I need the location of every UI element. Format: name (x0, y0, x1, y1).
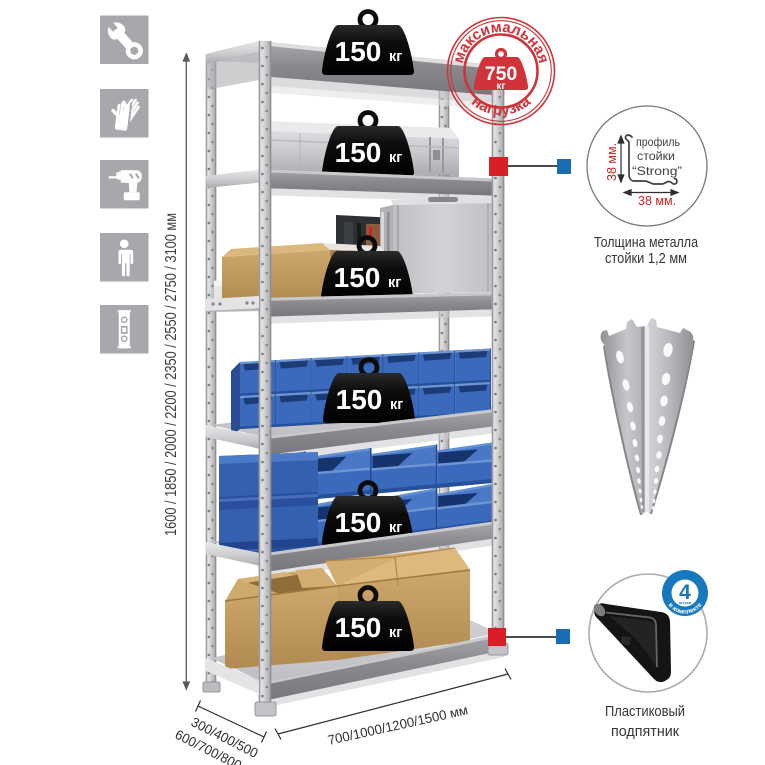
svg-text:кг: кг (496, 81, 505, 92)
svg-text:1600 / 1850 / 2000 / 2200 / 23: 1600 / 1850 / 2000 / 2200 / 2350 / 2550 … (163, 213, 180, 536)
svg-text:кг: кг (389, 150, 402, 166)
svg-text:штуки: штуки (679, 600, 692, 605)
svg-text:Пластиковый: Пластиковый (605, 703, 685, 720)
svg-text:150: 150 (335, 612, 382, 643)
svg-text:профиль: профиль (636, 137, 680, 149)
svg-text:стойки: стойки (637, 151, 675, 163)
svg-text:стойки 1,2 мм: стойки 1,2 мм (605, 250, 687, 267)
svg-text:кг: кг (389, 625, 402, 641)
svg-text:38 мм.: 38 мм. (638, 194, 676, 208)
svg-text:кг: кг (389, 520, 402, 536)
svg-text:150: 150 (336, 384, 383, 415)
svg-text:150: 150 (335, 507, 382, 538)
svg-text:700/1000/1200/1500 мм: 700/1000/1200/1500 мм (326, 702, 469, 748)
svg-text:150: 150 (335, 36, 382, 67)
svg-text:кг: кг (389, 49, 402, 65)
svg-text:“Strong”: “Strong” (632, 166, 682, 178)
svg-text:150: 150 (335, 137, 382, 168)
svg-text:38 мм.: 38 мм. (605, 143, 619, 181)
svg-text:кг: кг (390, 397, 403, 413)
svg-text:кг: кг (388, 275, 401, 291)
svg-text:Толщина металла: Толщина металла (594, 234, 699, 251)
svg-text:подпятник: подпятник (611, 723, 679, 740)
svg-text:150: 150 (334, 262, 381, 293)
